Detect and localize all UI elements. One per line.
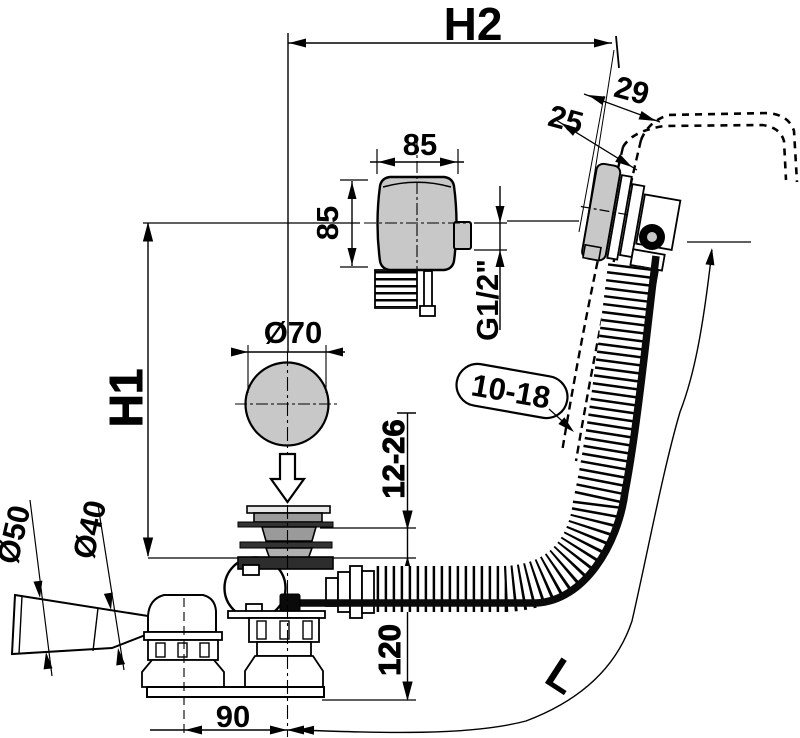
dim-h1-label: H1 (100, 369, 152, 428)
pull-rod (424, 271, 432, 308)
dim-120-label: 120 (372, 624, 407, 676)
dim-panel-thickness: 10-18 (453, 361, 577, 436)
dim-head-depth-label: 85 (310, 206, 345, 240)
dim-outlet-end-diameter-label: Ø40 (66, 497, 113, 562)
dim-hose-length: L (297, 242, 751, 735)
dim-l-label: L (537, 649, 586, 705)
insert-arrow-icon (271, 454, 304, 502)
dim-outlet-diameter-label: Ø50 (0, 502, 37, 567)
dim-h2-label: H2 (444, 0, 503, 50)
dim-head-width-label: 85 (403, 127, 437, 162)
dim-25-label: 25 (545, 98, 587, 141)
dim-29-label: 29 (611, 69, 653, 112)
dim-h2: H2 (288, 0, 619, 352)
dim-plug-diameter-label: Ø70 (264, 315, 323, 350)
dim-thread-label: G1/2" (470, 259, 505, 341)
outlet-pipe (12, 595, 148, 654)
dim-90-label: 90 (216, 699, 250, 734)
base-flange (147, 687, 324, 697)
drawing-canvas: H2 29 25 (0, 0, 800, 738)
waste-assembly (12, 256, 656, 697)
arrow-right-icon (594, 39, 611, 48)
technical-drawing: H2 29 25 (0, 0, 800, 738)
dim-12-26-label: 12-26 (376, 419, 411, 498)
dim-outlet-offset: 90 (150, 699, 304, 735)
arrow-left-icon (289, 39, 306, 48)
control-head: 85 85 G1/2" (310, 127, 579, 341)
